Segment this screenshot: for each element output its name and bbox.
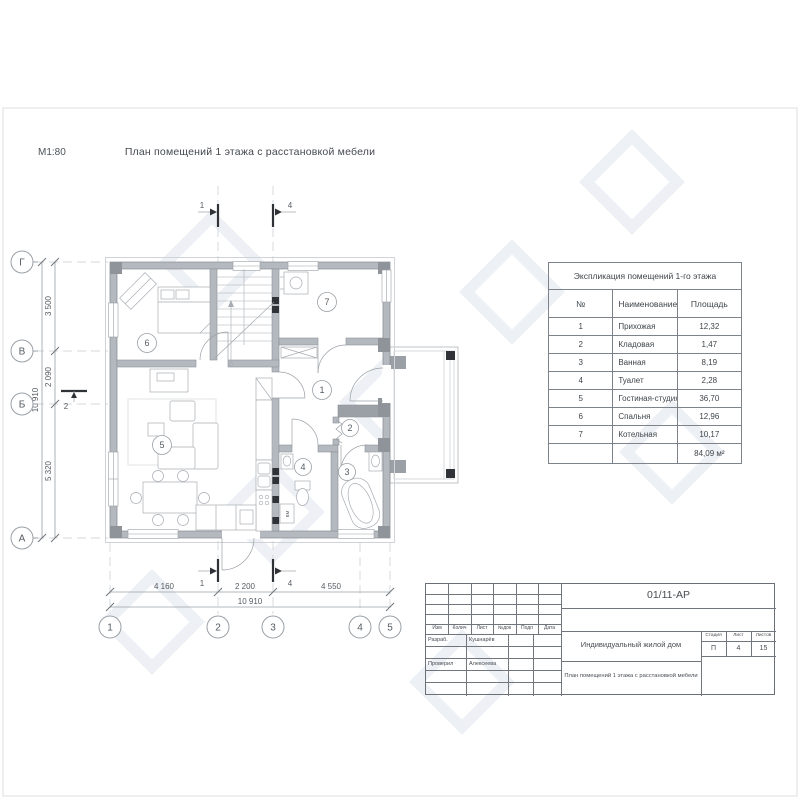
stamp-object-name: Индивидуальный жилой дом xyxy=(563,640,699,649)
dim-bottom-2: 2 200 xyxy=(235,582,256,591)
explication-table: Экспликация помещений 1-го этажа № Наиме… xyxy=(548,262,742,464)
axis-lines xyxy=(35,186,390,614)
explication-title: Экспликация помещений 1-го этажа xyxy=(549,263,742,290)
table-row: 1 Прихожая 12,32 xyxy=(549,318,742,336)
washer-label: ВМ xyxy=(285,510,290,517)
coffee-table xyxy=(148,423,164,436)
row-name: Котельная xyxy=(613,426,677,444)
stamp-doc-code: 01/11-АР xyxy=(561,589,776,601)
stairs xyxy=(215,269,274,366)
table-row: 2 Кладовая 1,47 xyxy=(549,336,742,354)
scale-label: М1:80 xyxy=(38,147,66,158)
room-1: 1 xyxy=(319,385,324,395)
axis-1: 1 xyxy=(107,623,113,634)
row-num: 4 xyxy=(549,372,613,390)
col-header-name: Наименование xyxy=(613,290,677,318)
total-area: 84,09 м² xyxy=(677,444,741,464)
row-num: 1 xyxy=(549,318,613,336)
row-num: 7 xyxy=(549,426,613,444)
stamp-role-checker: Проверил xyxy=(428,661,465,667)
axis-2: 2 xyxy=(215,623,221,634)
stamp-col-list: Лист xyxy=(471,625,493,631)
stamp-col-izm: Изм xyxy=(426,625,448,631)
dining-table xyxy=(143,482,197,513)
table-row: 5 Гостиная-студия 36,70 xyxy=(549,390,742,408)
stamp-name-checker: Алексеева xyxy=(469,661,507,667)
row-num: 3 xyxy=(549,354,613,372)
row-name: Кладовая xyxy=(613,336,677,354)
room-2: 2 xyxy=(347,423,352,433)
dim-left-2: 2 090 xyxy=(44,366,53,387)
section-label-1-bottom: 1 xyxy=(200,579,205,588)
dim-left-1: 3 500 xyxy=(44,295,53,316)
stamp-stage-label: Стадия xyxy=(701,633,726,638)
stamp-col-data: Дата xyxy=(538,625,561,631)
row-num: 6 xyxy=(549,408,613,426)
stamp-sheet-label: Лист xyxy=(726,633,751,638)
room-5: 5 xyxy=(159,440,164,450)
row-name: Ванная xyxy=(613,354,677,372)
sofa xyxy=(193,423,218,469)
stamp-name-developer: Кушнарёв xyxy=(469,637,507,643)
table-row: 4 Туалет 2,28 xyxy=(549,372,742,390)
stamp-sheets-value: 15 xyxy=(751,645,776,652)
stamp-stage-value: П xyxy=(701,645,726,652)
row-num: 5 xyxy=(549,390,613,408)
room-6: 6 xyxy=(144,338,149,348)
axis-5: 5 xyxy=(387,623,393,634)
table-row: 6 Спальня 12,96 xyxy=(549,408,742,426)
stamp-sheets-label: Листов xyxy=(751,633,776,638)
section-label-4-top: 4 xyxy=(288,201,293,210)
wardrobe-diagonal xyxy=(120,273,157,310)
row-area: 1,47 xyxy=(677,336,741,354)
table-total-row: 84,09 м² xyxy=(549,444,742,464)
axis-a: А xyxy=(19,534,26,545)
title-block: Изм Колич Лист №док Подп Дата Разраб. Ку… xyxy=(425,583,775,695)
table-row: 7 Котельная 10,17 xyxy=(549,426,742,444)
col-header-area: Площадь xyxy=(677,290,741,318)
axis-v: В xyxy=(19,347,26,358)
table-row: 3 Ванная 8,19 xyxy=(549,354,742,372)
row-name: Туалет xyxy=(613,372,677,390)
entrance-porch xyxy=(390,347,458,483)
dim-bottom-total: 10 910 xyxy=(238,597,263,606)
hall-wardrobe xyxy=(281,347,317,358)
plan-title: План помещений 1 этажа с расстановкой ме… xyxy=(110,146,390,158)
stamp-sheet-value: 4 xyxy=(726,645,751,652)
armchair xyxy=(170,401,195,421)
room-4: 4 xyxy=(300,462,305,472)
row-area: 12,96 xyxy=(677,408,741,426)
stamp-drawing-name: План помещений 1 этажа с расстановкой ме… xyxy=(563,673,699,679)
row-area: 36,70 xyxy=(677,390,741,408)
row-area: 10,17 xyxy=(677,426,741,444)
row-area: 2,28 xyxy=(677,372,741,390)
dim-left-3: 5 320 xyxy=(44,460,53,481)
row-name: Прихожая xyxy=(613,318,677,336)
room-7: 7 xyxy=(324,297,329,307)
axis-b: Б xyxy=(19,400,26,411)
axis-4: 4 xyxy=(357,623,363,634)
drawing-sheet: 3 500 2 090 5 320 10 910 4 160 2 200 4 5… xyxy=(0,0,800,800)
section-label-4-bottom: 4 xyxy=(288,579,293,588)
stamp-col-kolich: Колич xyxy=(448,625,471,631)
row-num: 2 xyxy=(549,336,613,354)
section-label-1-top: 1 xyxy=(200,201,205,210)
stamp-col-podp: Подп xyxy=(516,625,538,631)
row-name: Спальня xyxy=(613,408,677,426)
row-name: Гостиная-студия xyxy=(613,390,677,408)
stamp-col-ndok: №док xyxy=(493,625,516,631)
row-area: 12,32 xyxy=(677,318,741,336)
dim-bottom-1: 4 160 xyxy=(154,582,175,591)
axis-3: 3 xyxy=(270,623,276,634)
row-area: 8,19 xyxy=(677,354,741,372)
boiler-unit xyxy=(280,272,308,294)
col-header-num: № xyxy=(549,290,613,318)
dim-bottom-3: 4 550 xyxy=(321,582,342,591)
section-label-2-left: 2 xyxy=(64,402,69,411)
room-3: 3 xyxy=(344,467,349,477)
stamp-role-developer: Разраб. xyxy=(428,637,465,643)
axis-g: Г xyxy=(19,258,25,269)
